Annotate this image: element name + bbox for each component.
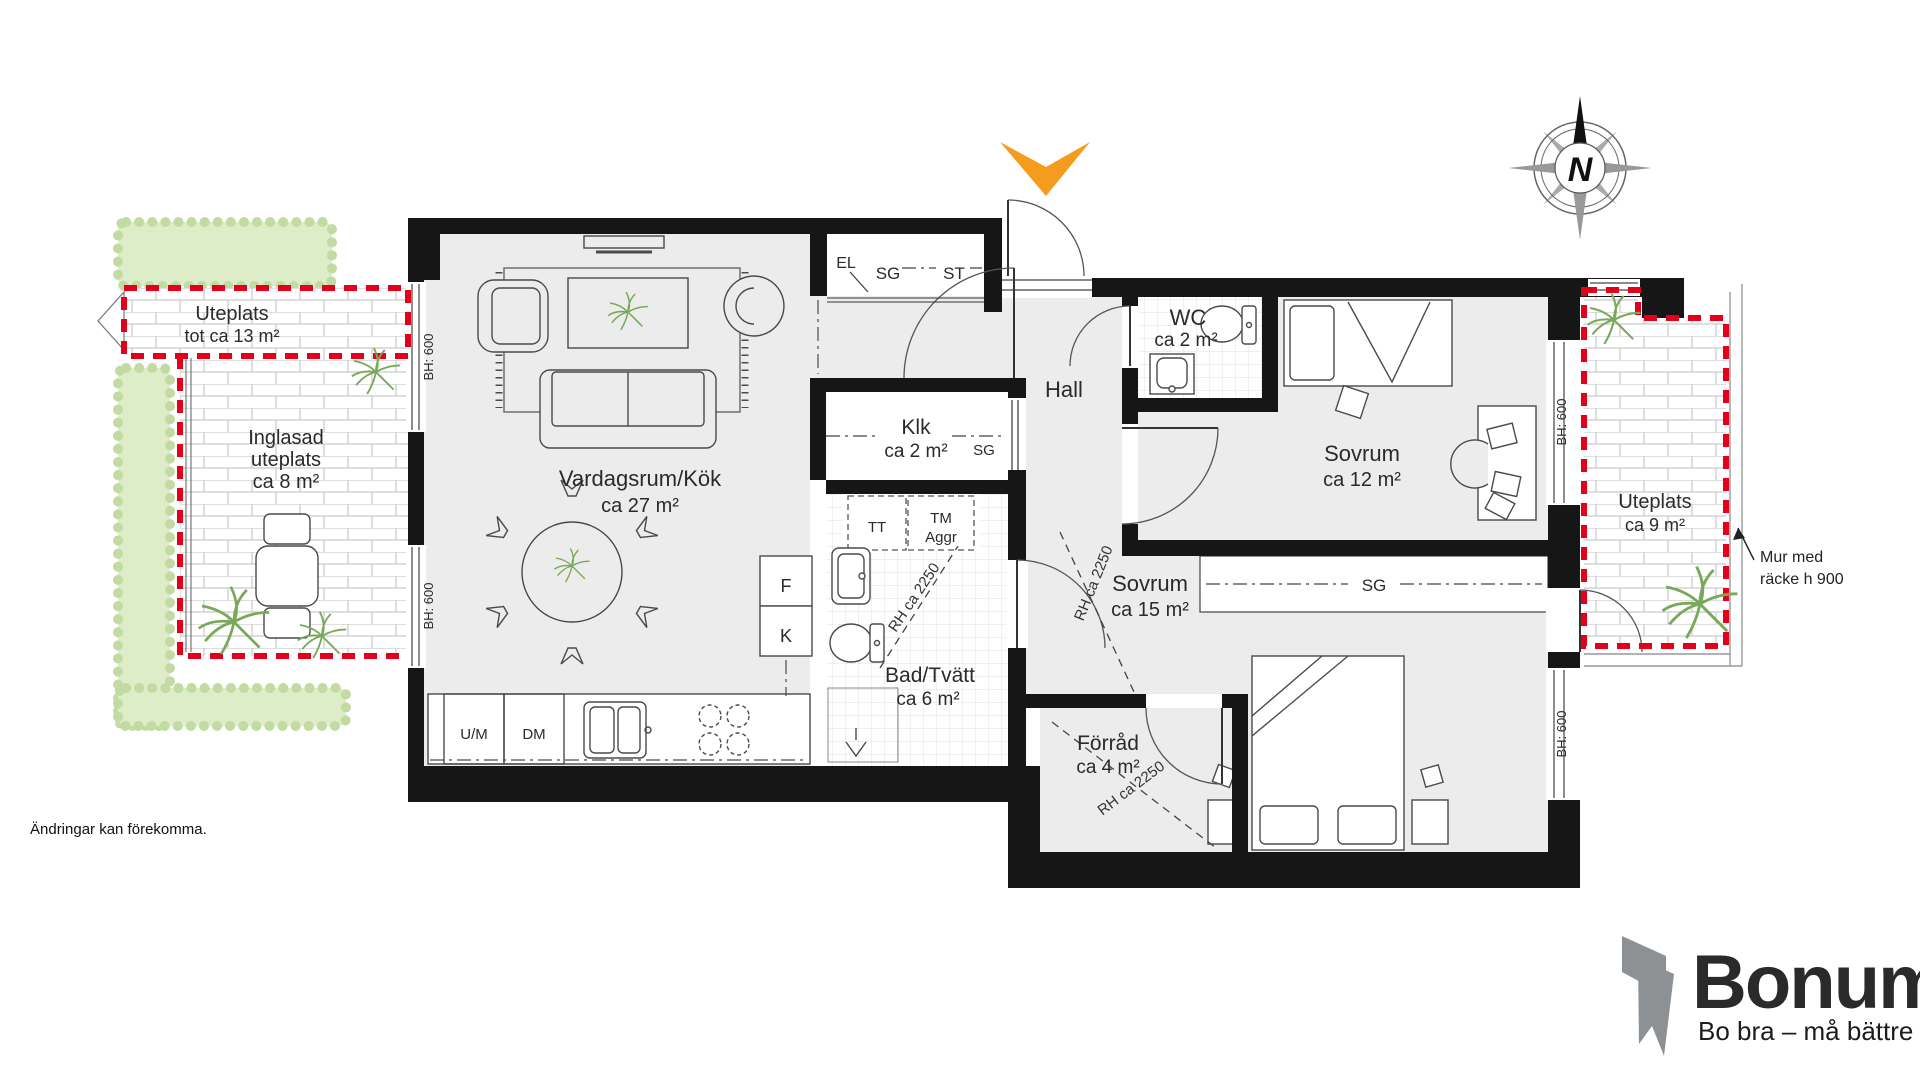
label-patio-right-2: ca 9 m² — [1625, 515, 1685, 535]
disclaimer-text: Ändringar kan förekomma. — [30, 821, 207, 838]
label-living-area: ca 27 m² — [601, 495, 679, 517]
hedge-left — [118, 368, 170, 726]
floorplan-page: Vardagsrum/Kök ca 27 m² Hall WC ca 2 m² … — [0, 0, 1920, 1080]
label-mur-2: räcke h 900 — [1760, 571, 1844, 588]
label-living-name: Vardagsrum/Kök — [559, 466, 722, 491]
label-dm: DM — [522, 726, 545, 743]
patio-furniture — [256, 514, 318, 638]
patio-chair-bottom — [264, 608, 310, 638]
label-wc-area: ca 2 m² — [1154, 330, 1217, 351]
hedge-bottom — [118, 688, 346, 726]
north-compass-icon: N — [1506, 94, 1653, 241]
entrance-door-opening — [1002, 274, 1092, 298]
label-freezer: K — [780, 626, 792, 646]
label-um: U/M — [460, 726, 488, 743]
label-patio-glazed-2: uteplats — [251, 449, 321, 471]
label-sg-walkin: SG — [973, 442, 995, 459]
label-patio-top-2: tot ca 13 m² — [184, 326, 279, 346]
label-storage-name: Förråd — [1077, 732, 1139, 755]
laundry-niche — [842, 494, 980, 552]
label-wc-name: WC — [1170, 305, 1207, 330]
label-bedroom-small-area: ca 12 m² — [1323, 469, 1401, 491]
label-patio-top-1: Uteplats — [195, 303, 268, 325]
dining-table — [522, 522, 622, 622]
bonum-logo-icon — [1638, 958, 1674, 1056]
label-bath-area: ca 6 m² — [896, 689, 959, 710]
bath-toilet — [830, 624, 872, 662]
hedge-top — [118, 222, 332, 286]
label-tt: TT — [868, 519, 886, 536]
label-st: ST — [943, 264, 965, 283]
label-el: EL — [836, 255, 856, 272]
floorplan-drawing: Vardagsrum/Kök ca 27 m² Hall WC ca 2 m² … — [0, 0, 1920, 1080]
label-bedroom-large-name: Sovrum — [1112, 571, 1188, 596]
annotation-arrow-icon — [1733, 528, 1745, 540]
nightstand-right — [1412, 800, 1448, 844]
patio-table — [256, 546, 318, 606]
bonum-logo: Bonum Bo bra – må bättre — [1622, 936, 1920, 1056]
label-mur-1: Mur med — [1760, 549, 1823, 566]
label-bh-3: BH: 600 — [1554, 399, 1569, 446]
tv-bench — [584, 236, 664, 248]
label-tm: TM — [930, 510, 952, 527]
label-patio-glazed-1: Inglasad — [248, 427, 324, 449]
round-chair — [724, 276, 784, 336]
label-bh-4: BH: 600 — [1554, 711, 1569, 758]
section-pennant — [98, 292, 124, 350]
patio-chair-top — [264, 514, 310, 544]
label-bh-1: BH: 600 — [421, 334, 436, 381]
label-bedroom-small-name: Sovrum — [1324, 441, 1400, 466]
label-sg-band: SG — [1362, 576, 1387, 595]
wall-annotation: Mur med räcke h 900 — [1733, 528, 1844, 588]
patio-right-area — [1584, 284, 1742, 666]
entrance-arrow-icon — [1000, 142, 1090, 196]
label-walkin-area: ca 2 m² — [884, 441, 947, 462]
label-fridge: F — [781, 576, 792, 596]
label-patio-right-1: Uteplats — [1618, 491, 1691, 513]
label-storage-area: ca 4 m² — [1076, 757, 1139, 778]
brand-tagline: Bo bra – må bättre — [1698, 1016, 1913, 1046]
label-bedroom-large-area: ca 15 m² — [1111, 599, 1189, 621]
label-aggr: Aggr — [925, 529, 957, 546]
label-bh-2: BH: 600 — [421, 583, 436, 630]
label-sg-closet: SG — [876, 264, 901, 283]
label-patio-glazed-3: ca 8 m² — [253, 471, 320, 493]
label-walkin-name: Klk — [901, 416, 931, 439]
label-bath-name: Bad/Tvätt — [885, 664, 975, 687]
label-north: N — [1568, 151, 1594, 189]
brand-name: Bonum — [1692, 940, 1920, 1025]
label-hall: Hall — [1045, 377, 1083, 402]
